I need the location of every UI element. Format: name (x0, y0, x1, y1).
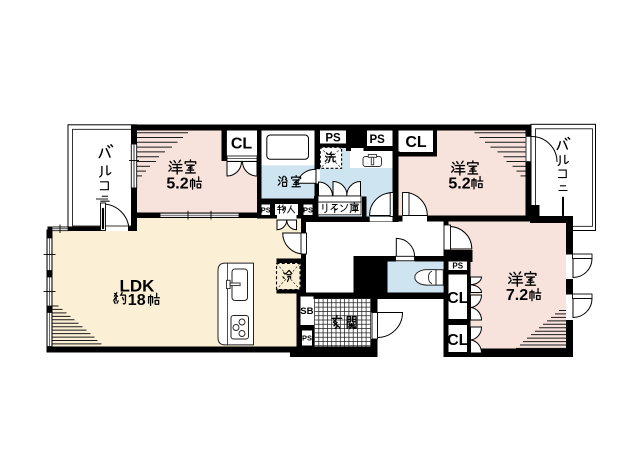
svg-text:7.2: 7.2 (506, 287, 528, 304)
svg-text:5.2: 5.2 (448, 175, 470, 192)
svg-text:5.2: 5.2 (166, 176, 188, 193)
svg-text:PS: PS (452, 262, 463, 271)
svg-text:CL: CL (405, 134, 427, 151)
svg-text:PS: PS (302, 334, 312, 343)
svg-text:CL: CL (447, 332, 469, 349)
svg-text:PS: PS (325, 133, 341, 145)
svg-text:18: 18 (128, 292, 146, 309)
svg-text:CL: CL (447, 290, 469, 307)
svg-text:CL: CL (231, 135, 253, 152)
svg-text:PS: PS (370, 134, 386, 146)
svg-text:SB: SB (300, 306, 313, 317)
svg-text:PS: PS (303, 206, 313, 215)
svg-text:PS: PS (261, 206, 271, 215)
